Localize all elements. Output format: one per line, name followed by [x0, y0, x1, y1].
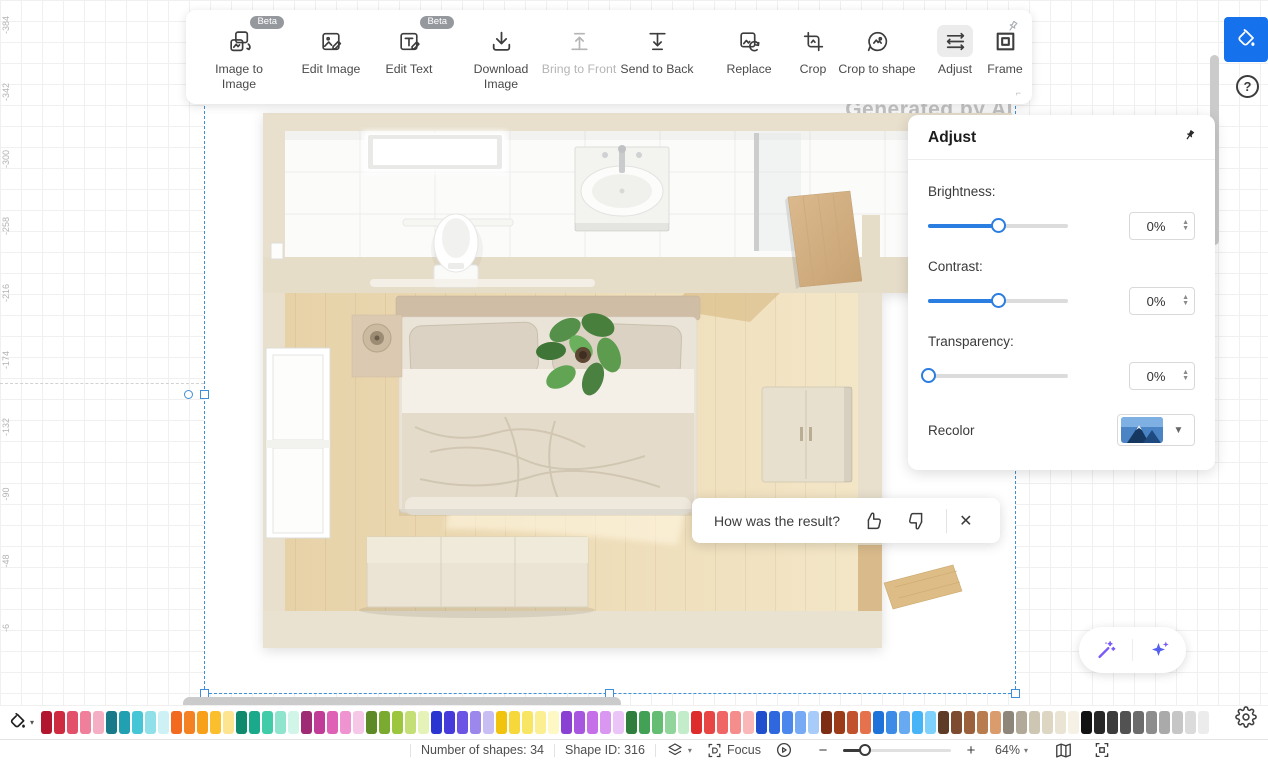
color-swatch[interactable] — [1003, 711, 1014, 734]
color-swatch[interactable] — [1042, 711, 1053, 734]
contrast-value-box[interactable]: 0% ▲▼ — [1129, 287, 1195, 315]
zoom-out-button[interactable]: − — [815, 742, 831, 759]
send-to-back-icon — [639, 25, 675, 57]
color-swatch[interactable] — [405, 711, 416, 734]
adjust-panel-title: Adjust — [928, 129, 976, 147]
recolor-label: Recolor — [928, 423, 975, 438]
selection-handle-left[interactable] — [200, 390, 209, 399]
color-swatch[interactable] — [548, 711, 559, 734]
color-swatch[interactable] — [977, 711, 988, 734]
download-image-button[interactable]: Download Image — [462, 11, 540, 103]
color-swatch[interactable] — [613, 711, 624, 734]
adjust-icon — [937, 25, 973, 57]
color-swatch[interactable] — [691, 711, 702, 734]
bedroom — [266, 293, 882, 618]
color-swatch[interactable] — [834, 711, 845, 734]
color-swatch[interactable] — [249, 711, 260, 734]
color-swatch[interactable] — [327, 711, 338, 734]
presentation-play-button[interactable] — [775, 741, 793, 759]
thumbs-up-icon[interactable] — [862, 510, 884, 532]
brightness-value: 0% — [1130, 219, 1182, 234]
bathroom-door — [785, 191, 862, 289]
color-swatches — [41, 711, 1209, 734]
stepper-arrows[interactable]: ▲▼ — [1182, 220, 1189, 233]
color-swatch[interactable] — [925, 711, 936, 734]
replace-button[interactable]: Replace — [710, 11, 788, 103]
color-swatch[interactable] — [41, 711, 52, 734]
focus-frame-icon — [706, 742, 723, 759]
ruler-label: -258 — [1, 213, 11, 239]
color-swatch[interactable] — [678, 711, 689, 734]
ceiling-light — [363, 131, 507, 173]
adjust-panel: Adjust Brightness: 0% ▲▼ Contrast: 0% ▲▼… — [908, 115, 1215, 470]
crop-to-shape-icon — [859, 25, 895, 57]
color-swatch[interactable] — [106, 711, 117, 734]
ruler-label: -174 — [1, 347, 11, 373]
color-swatch[interactable] — [1172, 711, 1183, 734]
color-swatch[interactable] — [951, 711, 962, 734]
recolor-dropdown[interactable]: ▼ — [1117, 414, 1195, 446]
color-swatch[interactable] — [1016, 711, 1027, 734]
color-swatch[interactable] — [704, 711, 715, 734]
toolbar-resize-icon: ⌐ — [1016, 88, 1020, 98]
floorplan-image[interactable]: Generated by AI — [205, 97, 1015, 693]
feedback-question: How was the result? — [714, 513, 840, 529]
selection-rotate-handle[interactable] — [184, 390, 193, 399]
statusbar-divider — [655, 744, 656, 757]
brightness-slider[interactable] — [928, 224, 1068, 228]
color-swatch[interactable] — [730, 711, 741, 734]
color-swatch[interactable] — [535, 711, 546, 734]
color-swatch[interactable] — [639, 711, 650, 734]
image-toolbar: Beta Image to Image Edit Image Beta Edit… — [186, 10, 1032, 104]
adjust-button[interactable]: Adjust — [930, 11, 980, 103]
color-swatch[interactable] — [54, 711, 65, 734]
focus-button[interactable]: Focus — [706, 742, 761, 759]
color-swatch[interactable] — [366, 711, 377, 734]
transparency-value: 0% — [1130, 369, 1182, 384]
replace-icon — [731, 25, 767, 57]
color-swatch[interactable] — [769, 711, 780, 734]
color-swatch[interactable] — [470, 711, 481, 734]
status-bar: Number of shapes: 34 Shape ID: 316 ▾ Foc… — [0, 739, 1268, 760]
alignment-guide — [0, 383, 204, 384]
help-button[interactable]: ? — [1236, 75, 1259, 98]
paper-holder — [271, 243, 283, 259]
color-swatch[interactable] — [418, 711, 429, 734]
chevron-down-icon: ▾ — [1024, 746, 1028, 755]
zoom-level: 64% — [995, 743, 1020, 757]
color-swatch[interactable] — [1159, 711, 1170, 734]
contrast-value: 0% — [1130, 294, 1182, 309]
statusbar-divider — [554, 744, 555, 757]
palette-settings-button[interactable] — [1231, 702, 1261, 732]
color-swatch[interactable] — [964, 711, 975, 734]
color-swatch[interactable] — [145, 711, 156, 734]
color-palette-bar: ▾ — [0, 705, 1268, 739]
edit-text-icon — [391, 25, 427, 57]
ruler-label: -48 — [1, 548, 11, 574]
crop-to-shape-button[interactable]: Crop to shape — [838, 11, 916, 103]
paint-bucket-icon — [1234, 28, 1258, 52]
image-to-image-button[interactable]: Beta Image to Image — [200, 11, 278, 103]
feedback-toast: How was the result? ✕ — [692, 498, 1000, 543]
color-swatch[interactable] — [652, 711, 663, 734]
selection-handle-bottom-right[interactable] — [1011, 689, 1020, 698]
overview-map-button[interactable] — [1054, 741, 1073, 760]
color-swatch[interactable] — [1120, 711, 1131, 734]
nightstand — [352, 315, 402, 377]
crop-button[interactable]: Crop — [788, 11, 838, 103]
color-swatch[interactable] — [379, 711, 390, 734]
color-swatch[interactable] — [1107, 711, 1118, 734]
color-swatch[interactable] — [938, 711, 949, 734]
color-swatch[interactable] — [392, 711, 403, 734]
color-swatch[interactable] — [1055, 711, 1066, 734]
chevron-down-icon: ▼ — [1163, 425, 1194, 436]
download-icon — [483, 25, 519, 57]
wardrobe — [762, 387, 852, 482]
close-icon[interactable]: ✕ — [959, 511, 972, 531]
thumbs-down-icon[interactable] — [906, 510, 928, 532]
ruler-label: -384 — [1, 12, 11, 38]
beta-badge: Beta — [250, 16, 284, 29]
color-swatch[interactable] — [496, 711, 507, 734]
wall-return — [862, 215, 880, 293]
panel-pin-icon[interactable] — [1182, 128, 1197, 148]
chevron-down-icon: ▾ — [688, 746, 692, 755]
color-swatch[interactable] — [782, 711, 793, 734]
color-swatch[interactable] — [743, 711, 754, 734]
color-swatch[interactable] — [171, 711, 182, 734]
zoom-in-button[interactable]: + — [963, 742, 979, 759]
color-swatch[interactable] — [873, 711, 884, 734]
ruler-label: -90 — [1, 481, 11, 507]
color-swatch[interactable] — [756, 711, 767, 734]
ruler-label: -342 — [1, 79, 11, 105]
color-swatch[interactable] — [132, 711, 143, 734]
send-to-back-button[interactable]: Send to Back — [618, 11, 696, 103]
color-swatch[interactable] — [795, 711, 806, 734]
color-swatch[interactable] — [1133, 711, 1144, 734]
color-swatch[interactable] — [509, 711, 520, 734]
color-swatch[interactable] — [587, 711, 598, 734]
color-swatch[interactable] — [1185, 711, 1196, 734]
color-swatch[interactable] — [288, 711, 299, 734]
statusbar-divider — [410, 744, 411, 757]
bring-to-front-button[interactable]: Bring to Front — [540, 11, 618, 103]
ruler-label: -216 — [1, 280, 11, 306]
color-swatch[interactable] — [93, 711, 104, 734]
fit-to-screen-button[interactable] — [1093, 741, 1111, 759]
paint-bucket-icon — [7, 712, 28, 733]
color-swatch[interactable] — [340, 711, 351, 734]
ai-actions-pill — [1079, 627, 1186, 673]
bring-to-front-icon — [561, 25, 597, 57]
stepper-arrows[interactable]: ▲▼ — [1182, 370, 1189, 383]
color-swatch[interactable] — [275, 711, 286, 734]
sink-vanity — [575, 145, 669, 231]
color-swatch[interactable] — [67, 711, 78, 734]
color-swatch[interactable] — [119, 711, 130, 734]
window — [266, 348, 330, 538]
color-swatch[interactable] — [444, 711, 455, 734]
towel-rail — [370, 279, 595, 287]
ai-sparkle-button[interactable] — [1133, 638, 1186, 662]
color-swatch[interactable] — [808, 711, 819, 734]
magic-wand-icon — [1095, 639, 1117, 661]
color-swatch[interactable] — [314, 711, 325, 734]
zoom-level-dropdown[interactable]: 64% ▾ — [995, 743, 1028, 757]
color-swatch[interactable] — [1198, 711, 1209, 734]
color-swatch[interactable] — [912, 711, 923, 734]
ruler-label: -132 — [1, 414, 11, 440]
color-swatch[interactable] — [847, 711, 858, 734]
color-swatch[interactable] — [483, 711, 494, 734]
color-swatch[interactable] — [626, 711, 637, 734]
color-swatch[interactable] — [574, 711, 585, 734]
fill-tool-button[interactable] — [1224, 17, 1268, 62]
shape-id-label: Shape ID: 316 — [565, 743, 645, 757]
color-swatch[interactable] — [561, 711, 572, 734]
color-swatch[interactable] — [158, 711, 169, 734]
color-swatch[interactable] — [236, 711, 247, 734]
gear-icon — [1235, 706, 1257, 728]
color-swatch[interactable] — [184, 711, 195, 734]
vertical-ruler: -384-342-300-258-216-174-132-90-48-6 — [0, 0, 14, 705]
color-swatch[interactable] — [990, 711, 1001, 734]
transparency-label: Transparency: — [928, 334, 1195, 349]
transparency-slider[interactable] — [928, 374, 1068, 378]
contrast-slider[interactable] — [928, 299, 1068, 303]
brightness-label: Brightness: — [928, 184, 1195, 199]
color-swatch[interactable] — [353, 711, 364, 734]
color-swatch[interactable] — [1081, 711, 1092, 734]
color-swatch[interactable] — [262, 711, 273, 734]
toolbar-pin-icon[interactable] — [1005, 19, 1020, 39]
color-swatch[interactable] — [1068, 711, 1079, 734]
color-swatch[interactable] — [717, 711, 728, 734]
palette-fill-tool[interactable]: ▾ — [7, 712, 34, 733]
question-mark-icon: ? — [1244, 79, 1252, 94]
sparkles-icon — [1148, 638, 1172, 662]
contrast-label: Contrast: — [928, 259, 1195, 274]
edit-image-icon — [313, 25, 349, 57]
bed — [396, 296, 700, 516]
beta-badge: Beta — [420, 16, 454, 29]
zoom-slider[interactable] — [843, 749, 951, 752]
edit-image-button[interactable]: Edit Image — [292, 11, 370, 103]
edit-text-button[interactable]: Beta Edit Text — [370, 11, 448, 103]
color-swatch[interactable] — [1146, 711, 1157, 734]
focus-label: Focus — [727, 743, 761, 757]
shape-count-label: Number of shapes: 34 — [421, 743, 544, 757]
color-swatch[interactable] — [665, 711, 676, 734]
color-swatch[interactable] — [431, 711, 442, 734]
storage-bench — [359, 537, 595, 618]
color-swatch[interactable] — [899, 711, 910, 734]
color-swatch[interactable] — [886, 711, 897, 734]
ruler-label: -300 — [1, 146, 11, 172]
transparency-value-box[interactable]: 0% ▲▼ — [1129, 362, 1195, 390]
ruler-label: -6 — [1, 615, 11, 641]
color-swatch[interactable] — [197, 711, 208, 734]
color-swatch[interactable] — [301, 711, 312, 734]
color-swatch[interactable] — [860, 711, 871, 734]
color-swatch[interactable] — [1094, 711, 1105, 734]
crop-icon — [795, 25, 831, 57]
stepper-arrows[interactable]: ▲▼ — [1182, 295, 1189, 308]
layers-icon — [666, 741, 684, 759]
color-swatch[interactable] — [210, 711, 221, 734]
brightness-value-box[interactable]: 0% ▲▼ — [1129, 212, 1195, 240]
chevron-down-icon: ▾ — [30, 718, 34, 727]
recolor-thumbnail — [1121, 417, 1163, 443]
color-swatch[interactable] — [223, 711, 234, 734]
color-swatch[interactable] — [600, 711, 611, 734]
layers-dropdown[interactable]: ▾ — [666, 741, 692, 759]
color-swatch[interactable] — [1029, 711, 1040, 734]
color-swatch[interactable] — [821, 711, 832, 734]
toast-divider — [946, 509, 947, 533]
doorway-floor — [858, 545, 882, 611]
color-swatch[interactable] — [522, 711, 533, 734]
image-to-image-icon — [221, 25, 257, 57]
magic-wand-button[interactable] — [1079, 639, 1132, 661]
color-swatch[interactable] — [457, 711, 468, 734]
color-swatch[interactable] — [80, 711, 91, 734]
